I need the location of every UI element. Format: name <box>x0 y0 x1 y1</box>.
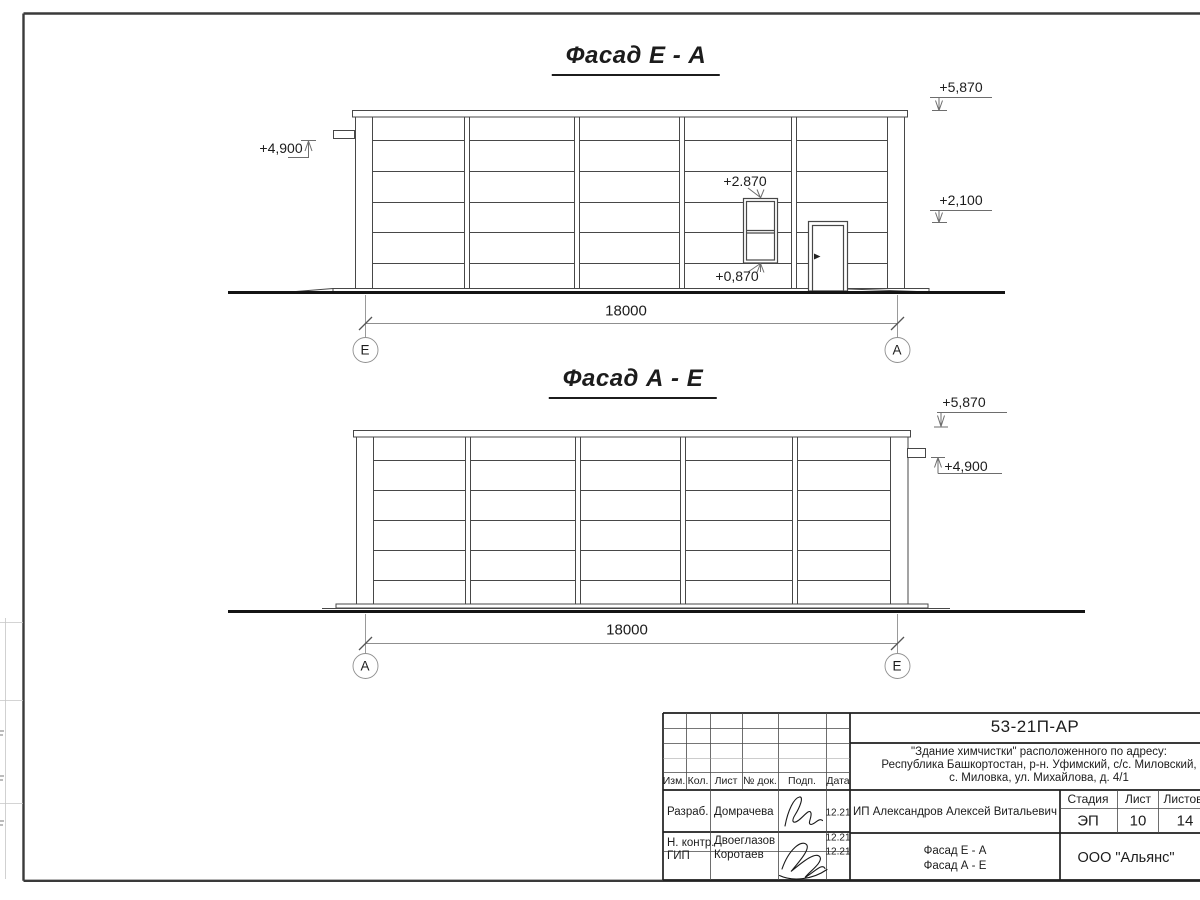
col-header-izm: Изм. <box>663 775 686 787</box>
facade2-building <box>322 431 950 609</box>
facade1-dimension-value: 18000 <box>605 303 647 320</box>
sheet-number: 10 <box>1130 813 1147 830</box>
sheet-label: Лист <box>1125 792 1151 806</box>
facade1-axis-right: А <box>892 343 901 358</box>
row-date-gip: 12.21 <box>825 847 850 858</box>
facade1-mark-top-right: +5,870 <box>939 79 982 95</box>
client-name: ИП Александров Алексей Витальевич <box>853 806 1057 818</box>
col-header-kol: Кол. <box>688 775 709 787</box>
facade2-dimension-value: 18000 <box>606 622 648 639</box>
row-name-dvoeglazov: Двоеглазов <box>714 835 775 847</box>
row-role-nkontr: Н. контр. <box>667 837 714 849</box>
stage-value: ЭП <box>1077 813 1099 830</box>
facade1-door <box>809 222 848 292</box>
row-role-gip: ГИП <box>667 850 690 862</box>
project-address-line3: с. Миловка, ул. Михайлова, д. 4/1 <box>949 772 1129 784</box>
col-header-data: Дата <box>826 775 849 787</box>
row-date-razrab: 12.21 <box>825 808 850 819</box>
project-address-line1: "Здание химчистки" расположенного по адр… <box>911 746 1167 758</box>
signature-domracheva <box>785 797 823 826</box>
facade1-elevation-markers <box>288 98 992 273</box>
facade2-canopy-protrusion <box>908 449 926 458</box>
doc-code: 53-21П-АР <box>991 717 1080 737</box>
facade2-axis-left: А <box>360 659 369 674</box>
facade1-axis-left: Е <box>360 343 369 358</box>
facade2-mark-top-right: +5,870 <box>942 394 985 410</box>
left-margin-marks <box>0 618 23 879</box>
left-margin-ticks <box>0 731 4 825</box>
row-date-nkontr: 12.21 <box>825 833 850 844</box>
facade2-axis-right: Е <box>892 659 901 674</box>
facade1-window <box>744 199 778 264</box>
facade2-mark-right: +4,900 <box>944 458 987 474</box>
sheet-content-line1: Фасад Е - А <box>924 845 987 857</box>
drawing-sheet: Фасад Е - А +4,900 +5,870 +2,100 +2.870 … <box>0 0 1200 900</box>
signature-korotaev <box>780 843 828 879</box>
stage-label: Стадия <box>1068 792 1109 806</box>
row-name-domracheva: Домрачева <box>714 806 774 818</box>
facade2-title: Фасад А - Е <box>549 365 717 399</box>
facade1-mark-left: +4,900 <box>259 140 302 156</box>
col-header-podp: Подп. <box>788 775 816 787</box>
facade1-mark-mid-right: +2,100 <box>939 192 982 208</box>
facade1-canopy-protrusion <box>334 131 355 139</box>
signatures <box>780 797 828 879</box>
col-header-doc: № док. <box>743 775 777 787</box>
sheet-content-line2: Фасад А - Е <box>924 860 987 872</box>
row-role-razrab: Разраб. <box>667 806 708 818</box>
project-address-line2: Республика Башкортостан, р-н. Уфимский, … <box>881 759 1196 771</box>
row-name-korotaev: Коротаев <box>714 849 764 861</box>
col-header-list: Лист <box>715 775 738 787</box>
sheets-total-label: Листов <box>1164 792 1200 806</box>
facade1-mark-window-top: +2.870 <box>723 173 766 189</box>
facade1-title: Фасад Е - А <box>552 42 720 76</box>
sheets-total-value: 14 <box>1177 813 1194 830</box>
facade1-mark-window-bottom: +0,870 <box>715 268 758 284</box>
company-name: ООО "Альянс" <box>1078 850 1175 866</box>
